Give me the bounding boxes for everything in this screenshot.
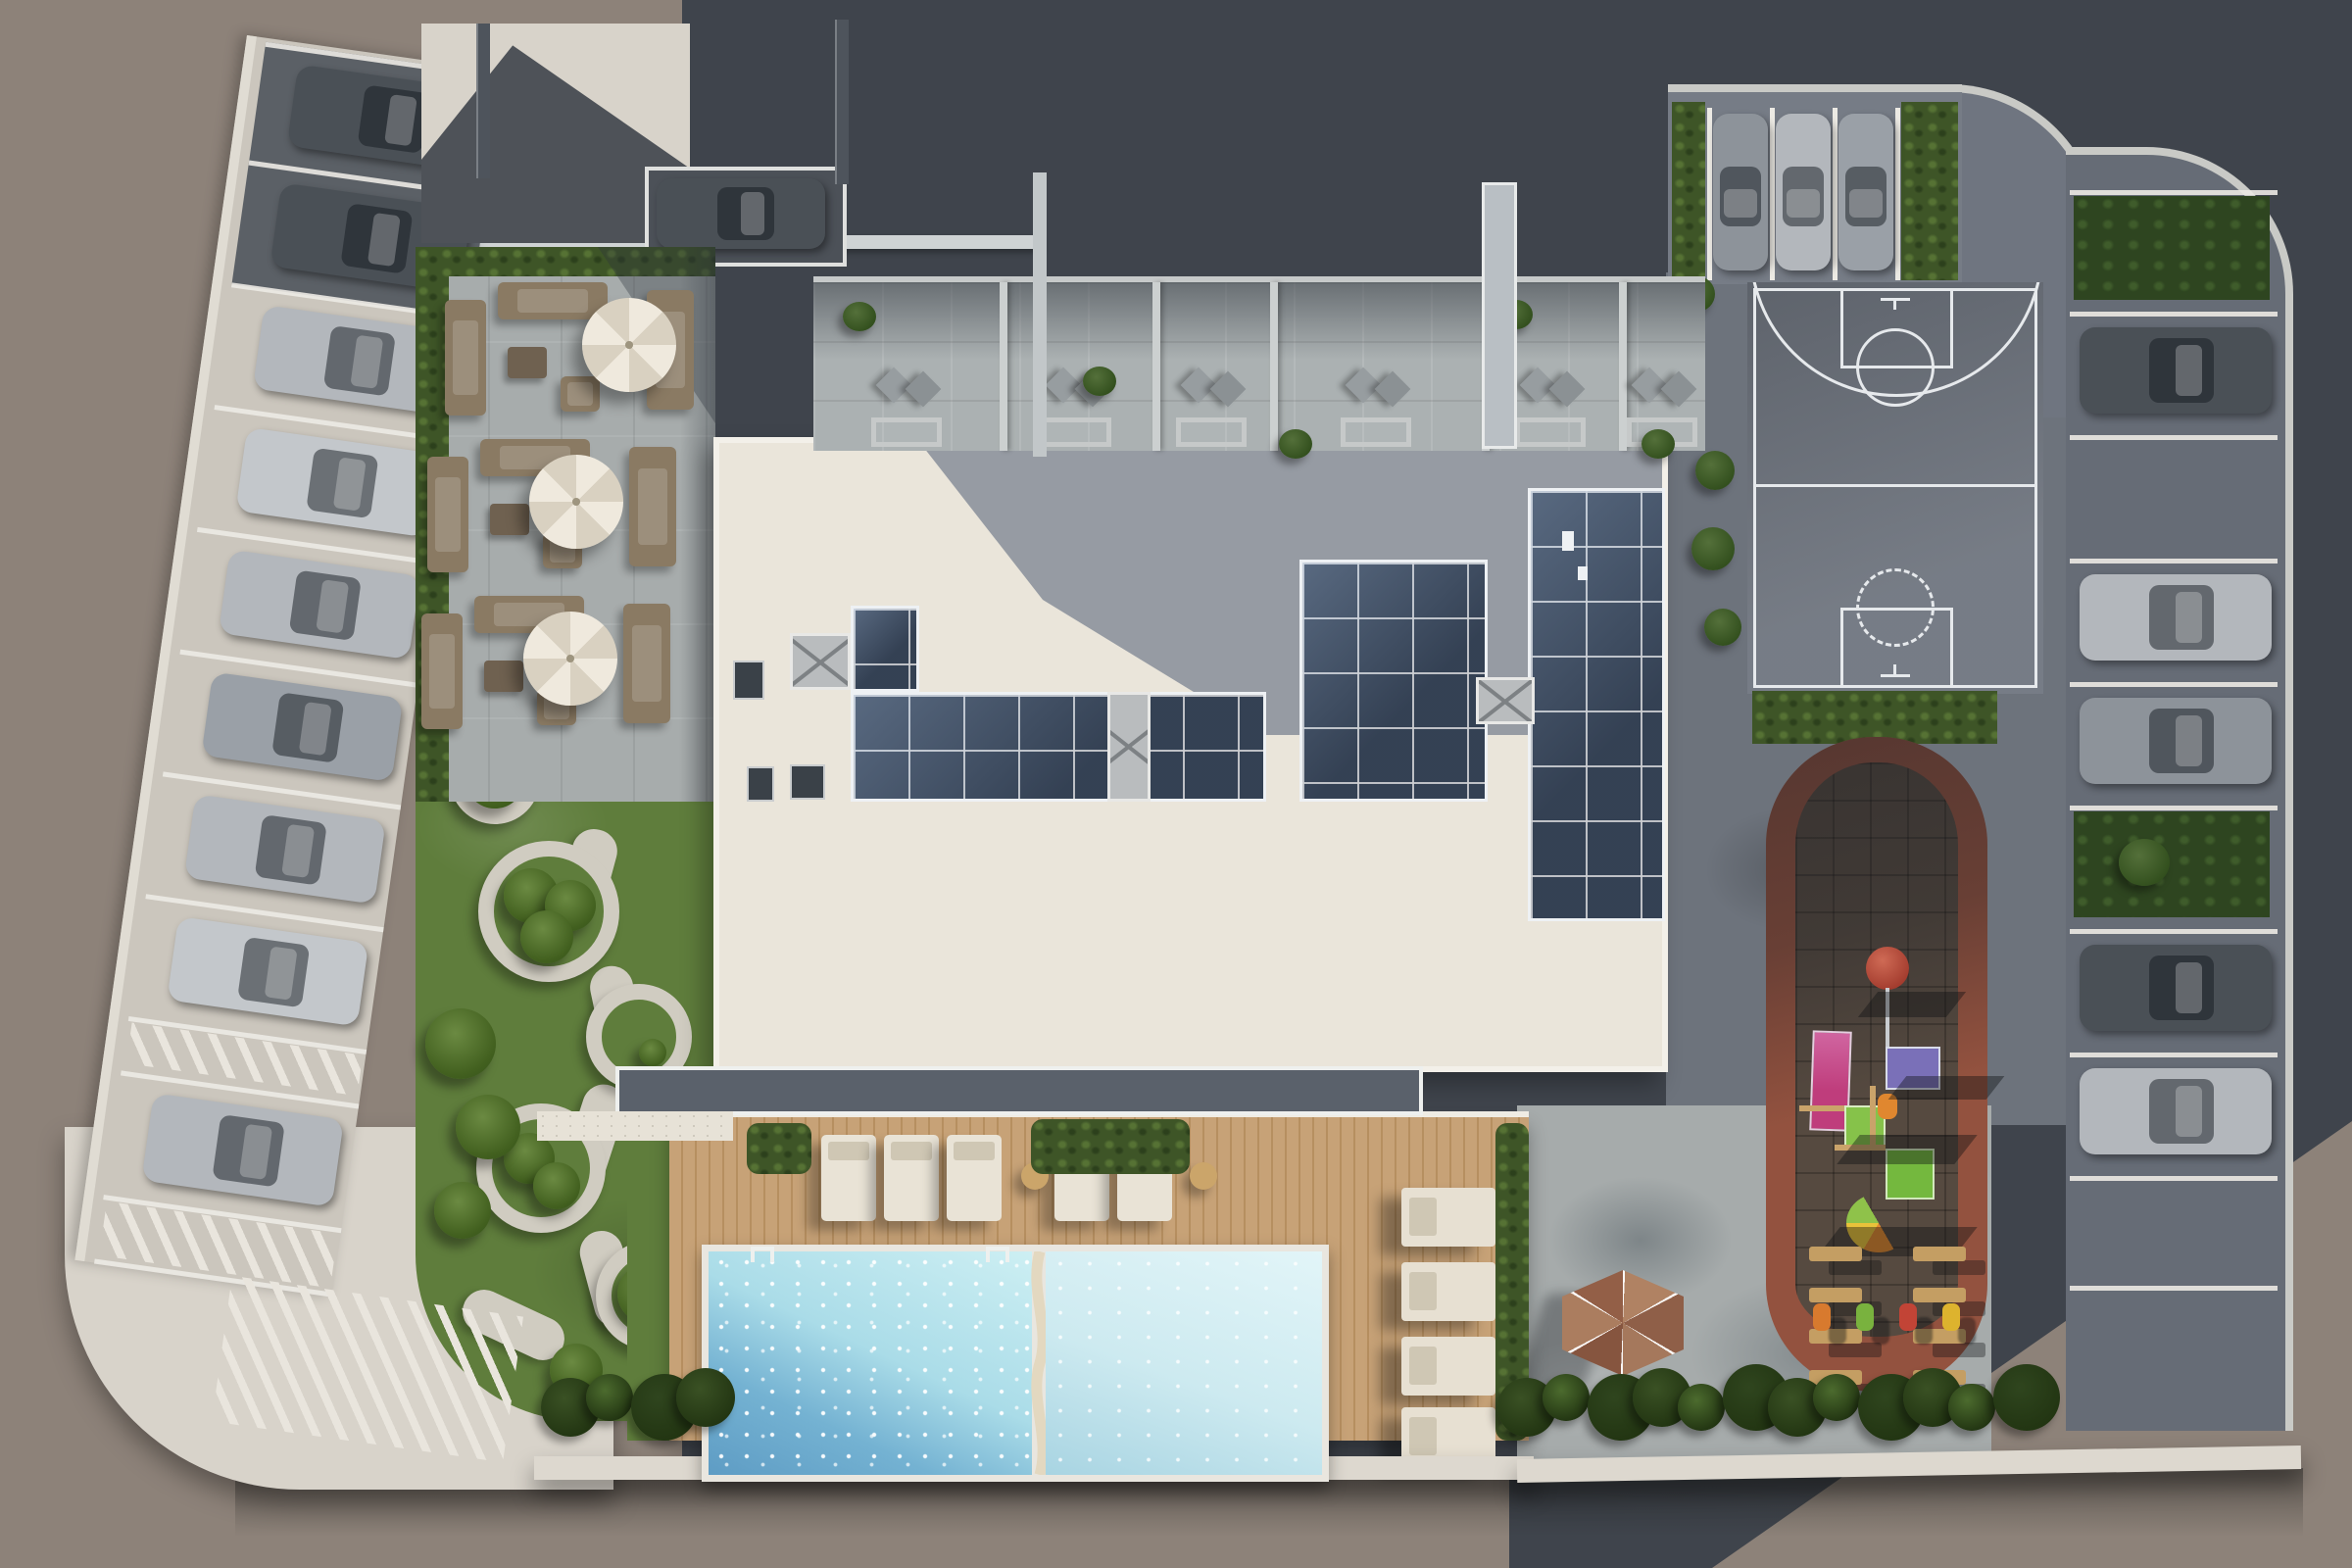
site-plan-render <box>0 0 2352 1568</box>
deck-hedge <box>1495 1123 1529 1441</box>
patio-privacy-wall <box>1482 182 1517 449</box>
sun-lounger <box>884 1135 939 1221</box>
deck-cabana <box>1401 1337 1495 1396</box>
deck-cabana <box>1401 1262 1495 1321</box>
pool-ladder <box>986 1247 1009 1262</box>
sun-lounger <box>947 1135 1002 1221</box>
swimming-pool <box>702 1245 1329 1482</box>
pool-ladders <box>702 1245 1329 1482</box>
deck-hedge <box>1031 1119 1190 1174</box>
gravel-strip <box>537 1111 733 1141</box>
sun-lounger <box>821 1135 876 1221</box>
patio-wall <box>1033 172 1047 457</box>
building-south-canopy <box>615 1066 1423 1115</box>
side-table <box>1190 1162 1217 1190</box>
deck-hedge <box>747 1123 811 1174</box>
pool-ladder <box>751 1247 774 1262</box>
deck-cabana <box>1401 1188 1495 1247</box>
